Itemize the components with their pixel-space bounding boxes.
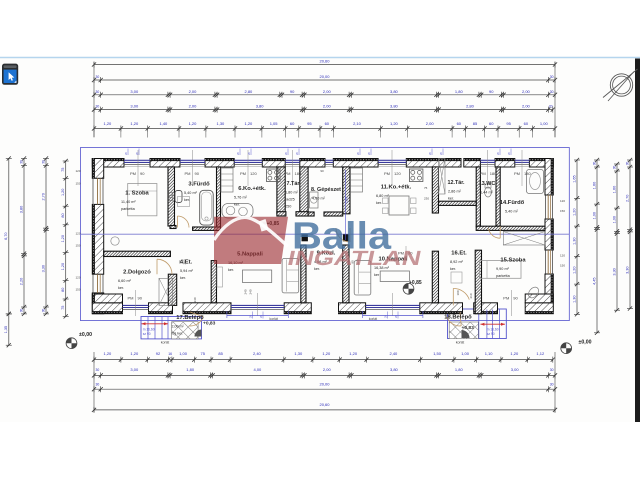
svg-text:6,60 m²: 6,60 m² bbox=[118, 279, 132, 283]
svg-text:PM: PM bbox=[503, 296, 509, 301]
svg-text:2,00: 2,00 bbox=[323, 367, 332, 372]
svg-text:180: 180 bbox=[490, 171, 497, 176]
svg-text:1,30: 1,30 bbox=[294, 351, 303, 356]
svg-text:180: 180 bbox=[295, 171, 302, 176]
svg-text:korlát: korlát bbox=[369, 317, 377, 321]
svg-text:1,80: 1,80 bbox=[186, 367, 195, 372]
svg-text:1,20: 1,20 bbox=[61, 235, 65, 242]
svg-text:30: 30 bbox=[550, 382, 554, 386]
svg-text:150: 150 bbox=[75, 288, 80, 292]
svg-text:ker.: ker. bbox=[376, 201, 382, 205]
svg-text:3,30: 3,30 bbox=[613, 268, 617, 275]
svg-text:120: 120 bbox=[250, 171, 257, 176]
svg-text:120: 120 bbox=[560, 199, 565, 203]
svg-text:rad25: rad25 bbox=[285, 198, 295, 202]
svg-text:ker.: ker. bbox=[450, 267, 456, 271]
svg-text:9,90 m²: 9,90 m² bbox=[496, 267, 510, 271]
svg-text:90: 90 bbox=[138, 296, 143, 301]
svg-text:m 16,60: m 16,60 bbox=[143, 328, 155, 332]
svg-text:1,20: 1,20 bbox=[245, 121, 254, 126]
svg-text:1,80: 1,80 bbox=[455, 89, 464, 94]
svg-text:90: 90 bbox=[195, 171, 200, 176]
svg-text:PM: PM bbox=[185, 171, 191, 176]
svg-text:1,20: 1,20 bbox=[573, 267, 577, 274]
svg-text:sz 90: sz 90 bbox=[143, 332, 151, 336]
svg-text:m 16,60: m 16,60 bbox=[487, 328, 499, 332]
svg-text:1,20: 1,20 bbox=[61, 189, 65, 196]
svg-text:3,00: 3,00 bbox=[130, 89, 139, 94]
svg-text:120: 120 bbox=[75, 276, 80, 280]
svg-text:75: 75 bbox=[61, 168, 65, 172]
svg-text:7.Tár: 7.Tár bbox=[287, 181, 301, 187]
svg-text:1,20: 1,20 bbox=[573, 209, 577, 216]
svg-text:2,70: 2,70 bbox=[42, 193, 46, 200]
svg-text:3,80: 3,80 bbox=[390, 367, 399, 372]
svg-text:1,60: 1,60 bbox=[613, 186, 617, 193]
svg-text:30: 30 bbox=[20, 160, 24, 164]
svg-text:1,20: 1,20 bbox=[61, 263, 65, 270]
svg-text:150: 150 bbox=[560, 264, 565, 268]
svg-text:+0,83: +0,83 bbox=[462, 325, 475, 331]
svg-text:30: 30 bbox=[550, 90, 554, 94]
svg-text:ker.: ker. bbox=[448, 197, 454, 201]
svg-text:150: 150 bbox=[75, 182, 80, 186]
svg-text:8. Gépészet: 8. Gépészet bbox=[311, 187, 341, 193]
svg-text:5,40 m²: 5,40 m² bbox=[505, 210, 519, 214]
svg-text:korlát: korlát bbox=[161, 341, 170, 345]
svg-text:korlát: korlát bbox=[270, 317, 278, 321]
svg-text:1,20: 1,20 bbox=[130, 351, 139, 356]
svg-text:3,30: 3,30 bbox=[42, 265, 46, 272]
svg-text:parketta: parketta bbox=[496, 274, 511, 278]
svg-text:230: 230 bbox=[424, 197, 429, 201]
svg-text:92: 92 bbox=[156, 351, 161, 356]
svg-text:1,00: 1,00 bbox=[593, 212, 597, 219]
svg-text:sz 90: sz 90 bbox=[487, 332, 495, 336]
svg-text:4,45: 4,45 bbox=[593, 278, 597, 285]
svg-text:60: 60 bbox=[524, 121, 529, 126]
svg-text:ker: ker bbox=[374, 273, 380, 277]
svg-text:2,00 m²: 2,00 m² bbox=[172, 325, 185, 329]
svg-text:30: 30 bbox=[20, 309, 24, 313]
svg-text:95: 95 bbox=[506, 121, 511, 126]
svg-text:30: 30 bbox=[96, 75, 100, 79]
svg-text:30: 30 bbox=[626, 162, 630, 166]
svg-text:1. Szoba: 1. Szoba bbox=[125, 191, 149, 197]
svg-text:100: 100 bbox=[456, 290, 460, 295]
svg-text:150: 150 bbox=[560, 209, 565, 213]
svg-text:85: 85 bbox=[473, 121, 478, 126]
svg-text:180: 180 bbox=[524, 171, 531, 176]
svg-text:80: 80 bbox=[61, 288, 65, 292]
svg-text:2,40: 2,40 bbox=[253, 351, 262, 356]
svg-text:ker.: ker. bbox=[118, 286, 124, 290]
svg-text:120: 120 bbox=[75, 169, 80, 173]
svg-text:parketta: parketta bbox=[121, 207, 136, 211]
svg-text:11.Ko.+étk.: 11.Ko.+étk. bbox=[381, 185, 412, 191]
svg-text:1,35: 1,35 bbox=[4, 326, 8, 333]
svg-text:8,92 m²: 8,92 m² bbox=[450, 260, 464, 264]
svg-text:1,30: 1,30 bbox=[217, 121, 226, 126]
svg-text:3,00: 3,00 bbox=[130, 367, 139, 372]
svg-text:ker.: ker. bbox=[234, 203, 240, 207]
svg-text:30: 30 bbox=[42, 160, 46, 164]
svg-text:1,30: 1,30 bbox=[573, 296, 577, 303]
svg-text:15.Szoba: 15.Szoba bbox=[500, 258, 526, 264]
svg-text:20: 20 bbox=[549, 105, 553, 109]
svg-text:240: 240 bbox=[244, 289, 248, 294]
svg-text:210: 210 bbox=[469, 293, 473, 298]
svg-text:2.Dolgozó: 2.Dolgozó bbox=[123, 270, 151, 276]
svg-text:3,80: 3,80 bbox=[390, 89, 399, 94]
svg-text:1,20: 1,20 bbox=[322, 351, 331, 356]
svg-text:fsg ker.: fsg ker. bbox=[172, 332, 184, 336]
svg-text:18.Belépő: 18.Belépő bbox=[444, 315, 472, 321]
svg-text:60: 60 bbox=[325, 121, 330, 126]
svg-text:75: 75 bbox=[200, 351, 205, 356]
svg-text:2,86 m²: 2,86 m² bbox=[448, 190, 462, 194]
svg-text:30: 30 bbox=[550, 75, 554, 79]
svg-text:90: 90 bbox=[290, 89, 295, 94]
svg-text:16.Et.: 16.Et. bbox=[451, 251, 467, 257]
svg-text:1,30: 1,30 bbox=[573, 238, 577, 245]
svg-text:INGATLAN: INGATLAN bbox=[285, 247, 423, 270]
svg-text:90: 90 bbox=[140, 171, 145, 176]
svg-text:ker.: ker. bbox=[228, 268, 234, 272]
svg-text:120: 120 bbox=[560, 254, 565, 258]
svg-text:17.Belépő: 17.Belépő bbox=[176, 315, 204, 321]
svg-text:1,00: 1,00 bbox=[540, 121, 549, 126]
svg-text:20,60: 20,60 bbox=[319, 59, 330, 64]
svg-text:±0,00: ±0,00 bbox=[579, 340, 592, 346]
svg-text:+0,85: +0,85 bbox=[409, 280, 422, 286]
svg-text:1,20: 1,20 bbox=[130, 121, 139, 126]
svg-text:2,30: 2,30 bbox=[345, 197, 349, 203]
svg-text:90: 90 bbox=[489, 89, 494, 94]
svg-text:+0,83: +0,83 bbox=[203, 321, 216, 327]
svg-text:4,00 m²: 4,00 m² bbox=[312, 197, 326, 201]
svg-text:3,80: 3,80 bbox=[256, 104, 265, 109]
svg-text:75: 75 bbox=[424, 186, 428, 190]
svg-text:30: 30 bbox=[550, 368, 554, 372]
svg-text:75: 75 bbox=[61, 306, 65, 310]
svg-text:30: 30 bbox=[96, 105, 100, 109]
svg-text:95: 95 bbox=[307, 121, 312, 126]
svg-text:30: 30 bbox=[42, 309, 46, 313]
svg-text:1,60: 1,60 bbox=[593, 182, 597, 189]
svg-text:3,00: 3,00 bbox=[130, 104, 139, 109]
svg-text:3,80: 3,80 bbox=[20, 206, 24, 213]
svg-text:1,20: 1,20 bbox=[510, 351, 519, 356]
svg-text:120: 120 bbox=[75, 232, 80, 236]
svg-text:1,80 m²: 1,80 m² bbox=[285, 191, 299, 195]
svg-text:60: 60 bbox=[489, 121, 494, 126]
svg-text:1,50: 1,50 bbox=[433, 351, 442, 356]
svg-text:150: 150 bbox=[75, 244, 80, 248]
svg-text:6,70: 6,70 bbox=[4, 233, 8, 240]
svg-text:ker.: ker. bbox=[184, 198, 190, 202]
svg-text:85: 85 bbox=[218, 351, 223, 356]
svg-text:1,00: 1,00 bbox=[613, 216, 617, 223]
svg-text:120: 120 bbox=[394, 171, 401, 176]
svg-text:2,10: 2,10 bbox=[353, 121, 362, 126]
svg-text:12.Tár.: 12.Tár. bbox=[447, 180, 465, 186]
svg-text:korlát: korlát bbox=[456, 341, 465, 345]
svg-text:4.Et.: 4.Et. bbox=[180, 260, 193, 266]
svg-text:6,80 m²: 6,80 m² bbox=[376, 194, 390, 198]
svg-text:PM: PM bbox=[285, 171, 291, 176]
svg-text:30: 30 bbox=[613, 166, 617, 170]
svg-text:5,40 m²: 5,40 m² bbox=[184, 191, 198, 195]
svg-text:PM: PM bbox=[514, 171, 520, 176]
svg-text:13.WC: 13.WC bbox=[479, 181, 496, 187]
svg-text:PM: PM bbox=[384, 171, 390, 176]
svg-text:3.Fürdő: 3.Fürdő bbox=[188, 182, 210, 188]
svg-text:1,20: 1,20 bbox=[104, 351, 113, 356]
svg-text:2,00: 2,00 bbox=[189, 89, 198, 94]
svg-text:3,80: 3,80 bbox=[390, 104, 399, 109]
svg-text:240: 240 bbox=[249, 289, 253, 294]
svg-text:60: 60 bbox=[290, 121, 295, 126]
svg-text:2,00: 2,00 bbox=[522, 89, 531, 94]
svg-text:5,76 m²: 5,76 m² bbox=[234, 196, 248, 200]
svg-text:PM: PM bbox=[130, 171, 136, 176]
svg-text:90: 90 bbox=[320, 169, 324, 173]
svg-text:1,20: 1,20 bbox=[349, 351, 358, 356]
svg-text:1,20: 1,20 bbox=[390, 121, 399, 126]
svg-text:3,30: 3,30 bbox=[626, 267, 630, 274]
svg-text:PM: PM bbox=[240, 171, 246, 176]
svg-text:PM: PM bbox=[128, 296, 134, 301]
svg-text:20,60: 20,60 bbox=[319, 402, 330, 407]
svg-text:60: 60 bbox=[457, 121, 462, 126]
svg-text:2,00: 2,00 bbox=[426, 121, 435, 126]
svg-text:20,00: 20,00 bbox=[319, 74, 330, 79]
svg-text:240: 240 bbox=[193, 297, 197, 302]
svg-text:90: 90 bbox=[513, 296, 518, 301]
svg-text:20,00: 20,00 bbox=[319, 381, 330, 386]
svg-text:4,00: 4,00 bbox=[254, 367, 263, 372]
svg-text:80: 80 bbox=[61, 213, 65, 217]
svg-text:3,00: 3,00 bbox=[511, 367, 520, 372]
svg-text:1,12: 1,12 bbox=[536, 351, 545, 356]
svg-text:1,10: 1,10 bbox=[485, 351, 494, 356]
svg-text:16: 16 bbox=[168, 352, 172, 356]
svg-text:1,20: 1,20 bbox=[104, 121, 113, 126]
svg-text:2,80: 2,80 bbox=[466, 104, 475, 109]
svg-text:2,00: 2,00 bbox=[323, 104, 332, 109]
svg-text:5,94 m²: 5,94 m² bbox=[180, 269, 194, 273]
svg-text:2,00: 2,00 bbox=[323, 89, 332, 94]
svg-text:ker.: ker. bbox=[180, 276, 186, 280]
svg-text:11,40 m²: 11,40 m² bbox=[121, 200, 136, 204]
svg-text:1,65: 1,65 bbox=[573, 175, 577, 182]
svg-text:1,00: 1,00 bbox=[461, 351, 470, 356]
svg-text:30: 30 bbox=[96, 382, 100, 386]
svg-text:±0,00: ±0,00 bbox=[79, 332, 92, 338]
svg-text:PM: PM bbox=[480, 171, 486, 176]
svg-text:30: 30 bbox=[96, 368, 100, 372]
svg-text:1,20: 1,20 bbox=[189, 121, 198, 126]
svg-text:1,00: 1,00 bbox=[179, 351, 188, 356]
svg-text:2,70: 2,70 bbox=[626, 195, 630, 202]
svg-text:1,80: 1,80 bbox=[455, 367, 464, 372]
svg-text:30: 30 bbox=[593, 162, 597, 166]
svg-text:250: 250 bbox=[285, 205, 291, 209]
svg-text:2,00: 2,00 bbox=[189, 104, 198, 109]
svg-text:2,80: 2,80 bbox=[245, 89, 254, 94]
svg-text:2,00: 2,00 bbox=[522, 104, 531, 109]
svg-text:1,05: 1,05 bbox=[270, 121, 279, 126]
svg-text:1,44 m²: 1,44 m² bbox=[480, 191, 494, 195]
svg-text:2,40: 2,40 bbox=[390, 351, 399, 356]
svg-text:30: 30 bbox=[96, 90, 100, 94]
svg-text:2,20: 2,20 bbox=[20, 278, 24, 285]
svg-text:1,40: 1,40 bbox=[160, 121, 169, 126]
svg-text:14.Fürdő: 14.Fürdő bbox=[500, 200, 525, 206]
svg-text:6.Ko.+étk.: 6.Ko.+étk. bbox=[238, 186, 266, 192]
